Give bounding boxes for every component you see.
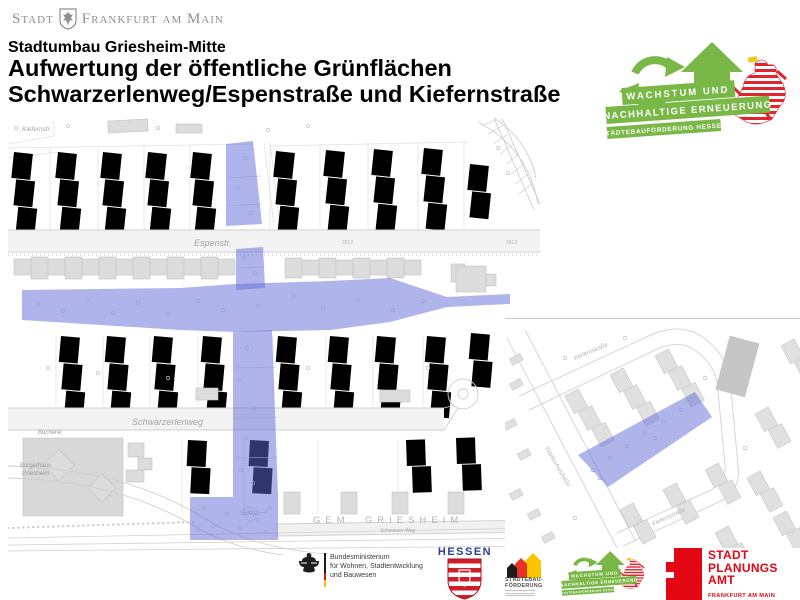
- staedtebau-text: STÄDTEBAU- FÖRDERUNG: [505, 577, 543, 589]
- staedtebau-line2: FÖRDERUNG: [505, 583, 543, 589]
- highlight-band: [22, 278, 510, 332]
- slide-title-line1: Aufwertung der öffentliche Grünflächen: [8, 55, 560, 81]
- bund-ministry-text: Bundesministerium für Wohnen, Stadtentwi…: [330, 553, 423, 580]
- city-brand: Stadt Frankfurt am Main: [12, 8, 224, 30]
- highlight-north-arm: [226, 141, 262, 226]
- parcel-2613-label: 2613: [506, 240, 517, 246]
- gemarkung-label: GEM. GRIESHEIM: [313, 515, 463, 526]
- spielplatz-label: Spielpl.: [240, 511, 260, 517]
- schwarzer-weg-label: Schwarzer Weg: [380, 528, 415, 534]
- program-logo-small: WACHSTUM UND NACHHALTIGE ERNEUERUNG STÄD…: [561, 547, 651, 599]
- slide-title: Aufwertung der öffentliche Grünflächen S…: [8, 55, 560, 107]
- spa-line1: STADT: [708, 549, 778, 562]
- hessen-shield-icon: [446, 558, 484, 600]
- staedtebau-smallprint: [505, 590, 535, 598]
- slide-title-line2: Schwarzerlenweg/Espenstraße und Kieferns…: [8, 81, 560, 107]
- hessen-wordmark: HESSEN: [435, 546, 495, 558]
- bund-line3: und Bauwesen: [330, 571, 423, 580]
- stadtplanungsamt-text: STADT PLANUNGS AMT FRANKFURT AM MAIN: [708, 549, 778, 600]
- inset-map: Kiefernstraße Waldschulstraße Kiefernstr…: [505, 318, 800, 548]
- slide: Stadt Frankfurt am Main Stadtumbau Gries…: [0, 0, 800, 600]
- staedtebau-houses-icon: [505, 552, 549, 578]
- buergerhaus-label-1: Bürgerhaus: [20, 463, 51, 469]
- spa-line3: AMT: [708, 574, 778, 587]
- buergerhaus-label-2: Griesheim: [22, 471, 49, 477]
- city-brand-frankfurt: Frankfurt am Main: [82, 11, 224, 28]
- buecherei-label: Bücherei: [38, 430, 62, 436]
- parcel-2612-label: 2612: [342, 240, 353, 246]
- program-logo-graphic: WACHSTUM UND NACHHALTIGE ERNEUERUNG STÄD…: [605, 33, 800, 145]
- bund-line2: für Wohnen, Stadtentwicklung: [330, 562, 423, 571]
- program-logo-small-graphic: WACHSTUM UND NACHHALTIGE ERNEUERUNG STÄD…: [561, 547, 651, 599]
- bund-line1: Bundesministerium: [330, 553, 423, 562]
- kiefernstr-label: Kiefernstr.: [22, 126, 52, 133]
- schwarzerlenweg-label: Schwarzerlenweg: [132, 417, 203, 427]
- spa-line4: FRANKFURT AM MAIN: [708, 590, 778, 600]
- espenstr-label: Espenstr.: [194, 238, 232, 248]
- stadtplanungsamt-glyph-icon: [660, 548, 704, 600]
- bund-eagle-icon: [298, 551, 328, 593]
- frankfurt-crest-icon: [59, 8, 77, 30]
- program-logo: WACHSTUM UND NACHHALTIGE ERNEUERUNG STÄD…: [605, 33, 800, 148]
- main-map: .bld rect,.bldr{fill:#dcdcdc;stroke:#c3c…: [8, 118, 540, 555]
- city-brand-stadt: Stadt: [12, 11, 54, 28]
- espenstrasse: Espenstr. 2612 2613: [8, 230, 540, 255]
